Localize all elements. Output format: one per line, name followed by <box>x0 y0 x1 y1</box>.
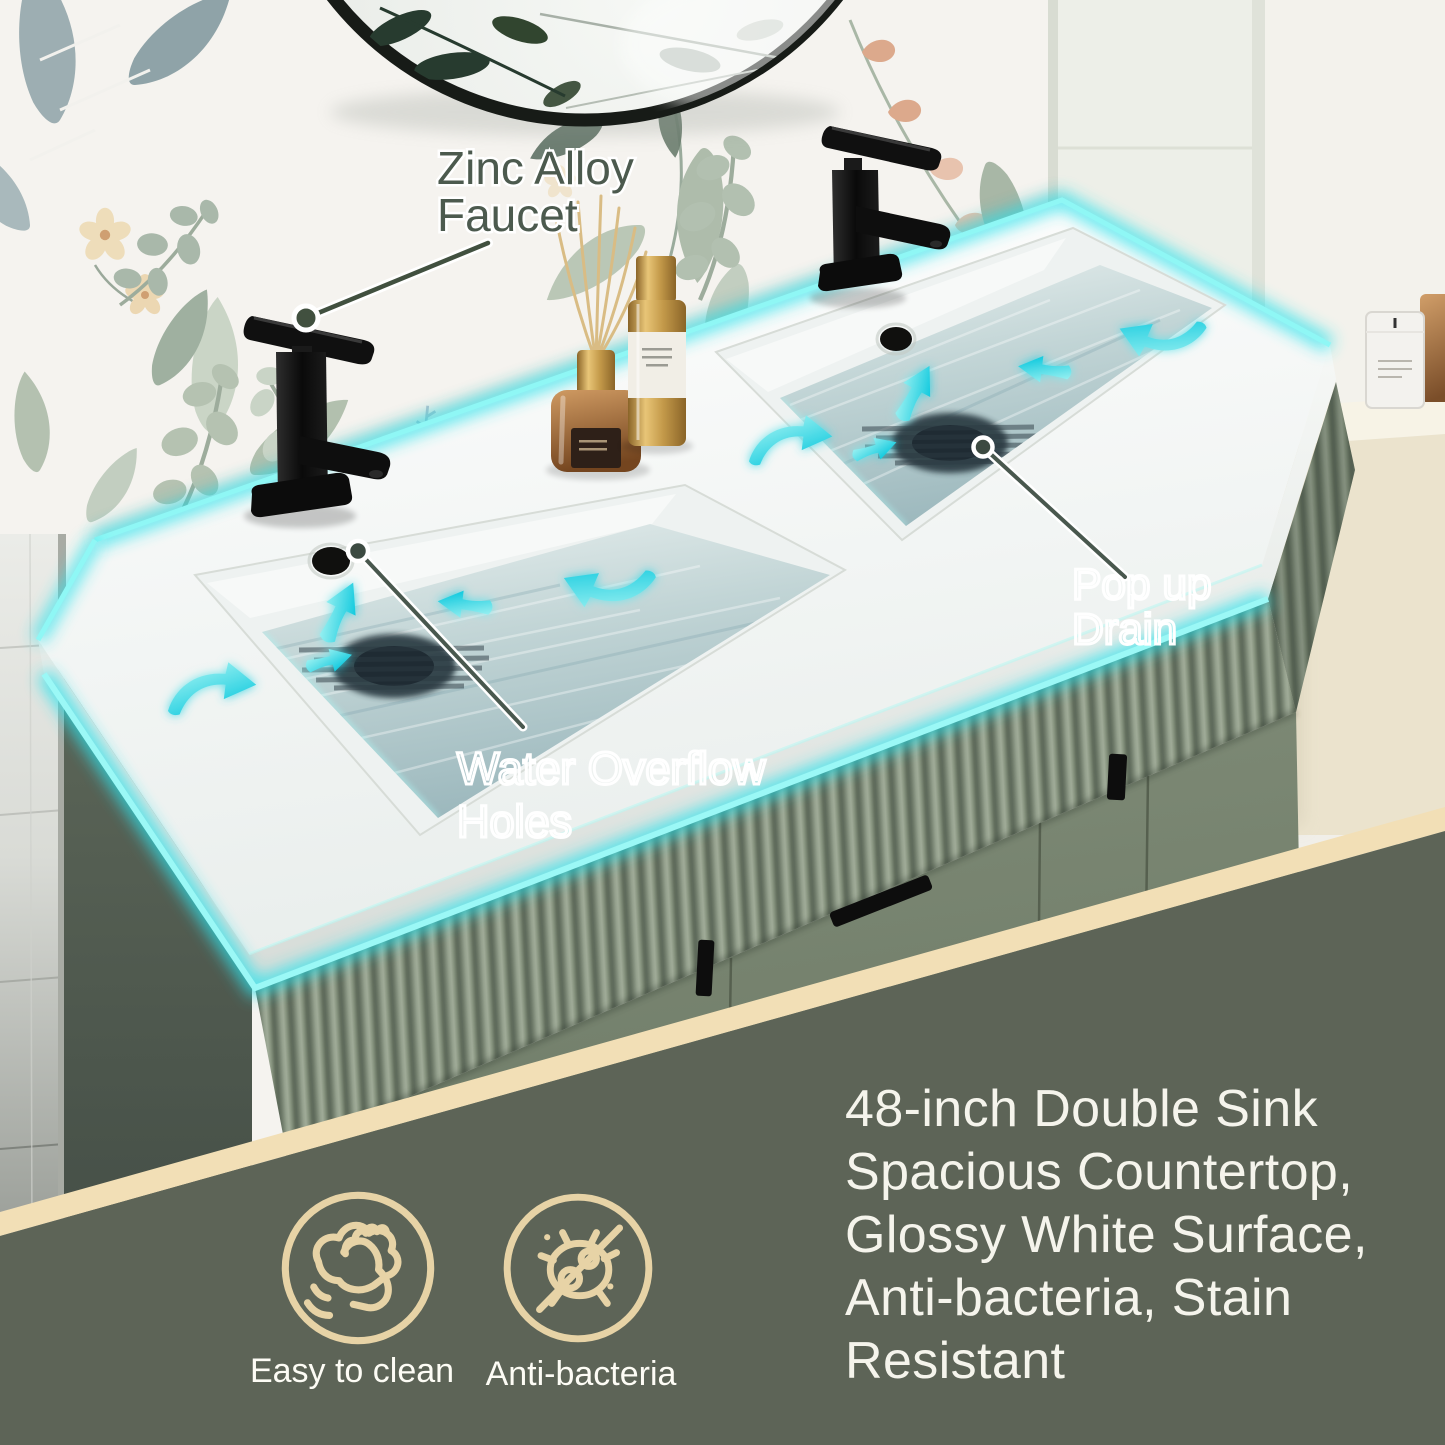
overflow-callout-line2: Holes <box>457 796 572 847</box>
overflow-callout-line1: Water Overflow <box>457 743 766 794</box>
right-overflow-hole <box>880 327 912 351</box>
faucet-callout-dot <box>294 306 318 330</box>
door-handle <box>696 940 715 997</box>
faucet-callout-line2: Faucet <box>437 189 578 241</box>
feature-line: Resistant <box>845 1330 1435 1393</box>
drain-callout-line1: Pop up <box>1072 560 1211 609</box>
drain-callout-line2: Drain <box>1072 605 1177 654</box>
overflow-callout-dot <box>348 541 368 561</box>
feature-line: Anti-bacteria, Stain <box>845 1267 1435 1330</box>
feature-line: 48-inch Double Sink <box>845 1078 1435 1141</box>
wipe-clean-icon <box>279 1189 437 1347</box>
feature-line: Glossy White Surface, <box>845 1204 1435 1267</box>
drain-callout-dot <box>974 438 993 457</box>
faucet-callout-line1: Zinc Alloy <box>437 142 634 194</box>
door-handle <box>1107 754 1127 801</box>
easy-to-clean-label: Easy to clean <box>242 1352 462 1391</box>
left-overflow-hole <box>312 547 350 575</box>
anti-bacteria-label: Anti-bacteria <box>471 1355 691 1394</box>
feature-line: Spacious Countertop, <box>845 1141 1435 1204</box>
candles <box>1366 294 1445 408</box>
product-image: Zinc Alloy Faucet Water Overflow Holes P… <box>0 0 1445 1445</box>
feature-text: 48-inch Double Sink Spacious Countertop,… <box>845 1078 1435 1393</box>
no-bacteria-icon <box>501 1191 655 1345</box>
